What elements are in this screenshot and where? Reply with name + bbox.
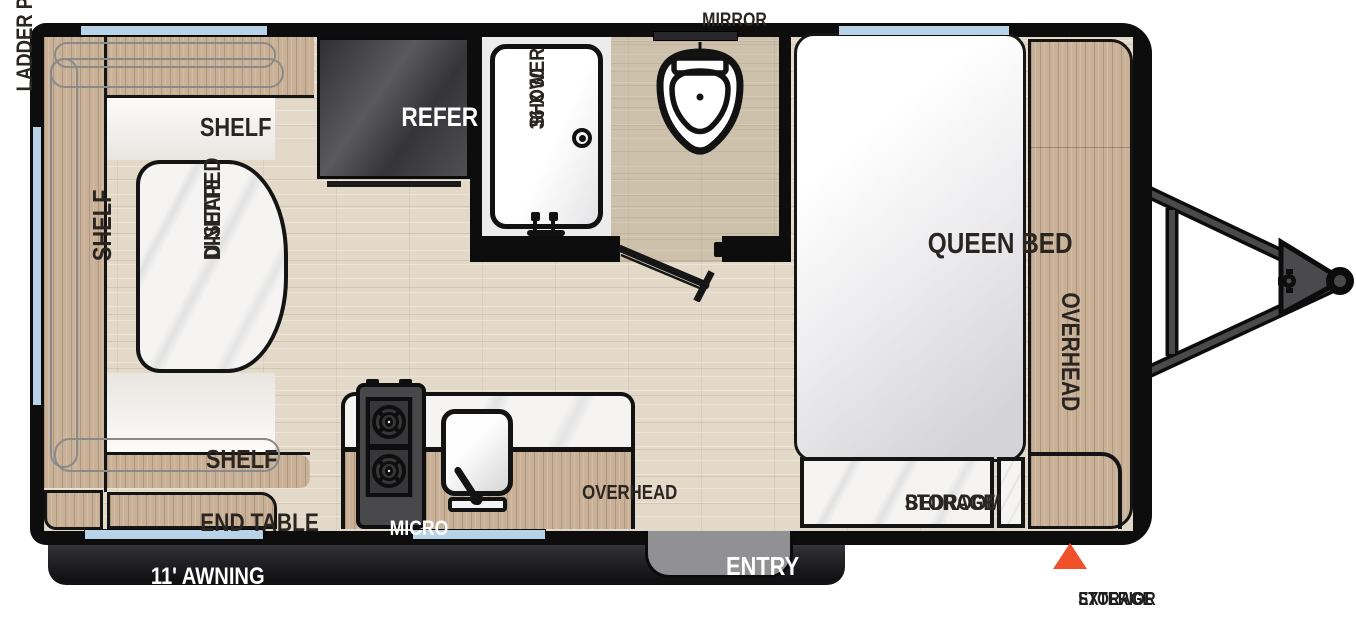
window xyxy=(838,25,1010,36)
bathroom-wall xyxy=(470,37,482,262)
shower-spout xyxy=(527,230,565,236)
cooktop-stove xyxy=(356,377,428,529)
toilet xyxy=(652,40,748,162)
bathroom-wall xyxy=(779,37,791,262)
bathroom-wall xyxy=(722,236,791,262)
dinette-divider-line xyxy=(104,37,107,492)
wardrobe-outline xyxy=(1028,452,1122,529)
kitchen-sink xyxy=(441,409,513,496)
mirror xyxy=(653,31,738,41)
trailer-hitch xyxy=(1130,170,1356,400)
shower-drain xyxy=(579,135,586,142)
dinette-seat-outline xyxy=(50,58,78,468)
bathroom-door xyxy=(598,238,728,302)
dinette-seat-outline xyxy=(50,58,284,88)
faucet-base-dot xyxy=(470,492,483,505)
refrigerator-shadow xyxy=(327,181,461,187)
exterior-storage-marker-icon xyxy=(1053,543,1087,569)
cabinet-seam xyxy=(1031,147,1130,148)
shelf-top-edge-line xyxy=(107,95,314,98)
window xyxy=(80,25,268,36)
window xyxy=(32,126,42,406)
end-table-side-block xyxy=(44,490,103,530)
rv-floorplan: LADDER PREP MIRROR REFER 36 X 30SHOWER S… xyxy=(0,0,1356,617)
